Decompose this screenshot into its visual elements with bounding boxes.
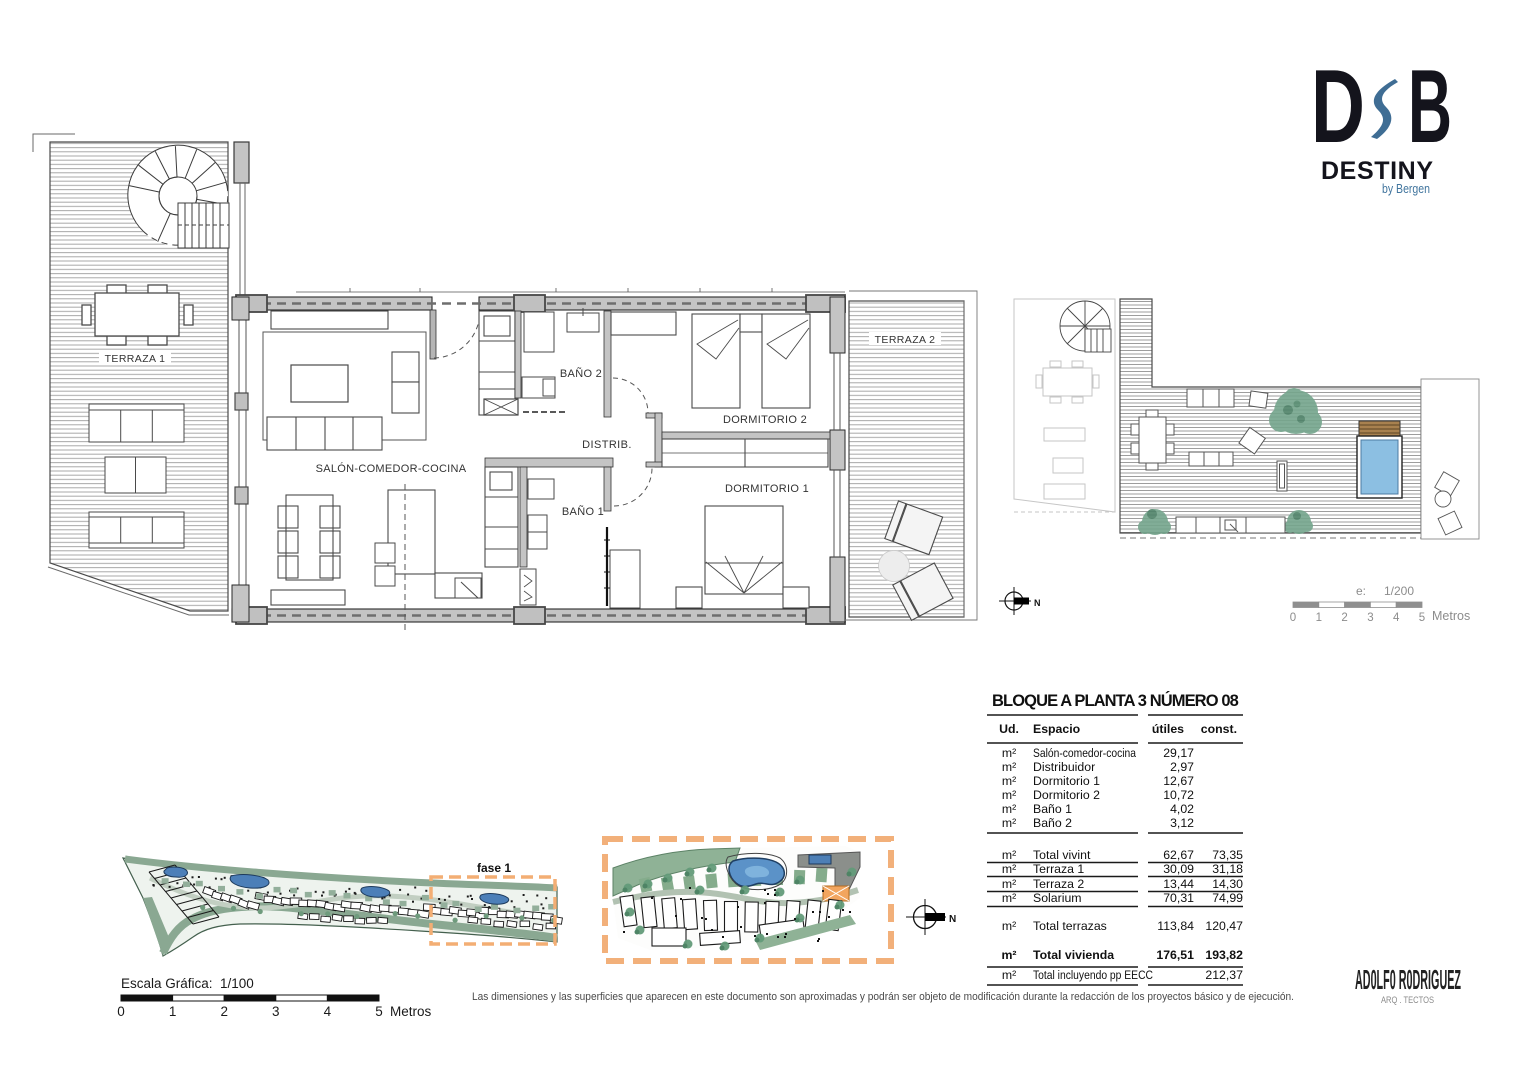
svg-text:m²: m² [1002, 877, 1016, 891]
svg-text:Total incluyendo pp EECC: Total incluyendo pp EECC [1033, 968, 1153, 982]
svg-text:1: 1 [1316, 612, 1322, 624]
svg-text:BAÑO 1: BAÑO 1 [562, 505, 604, 518]
svg-text:TERRAZA 1: TERRAZA 1 [105, 353, 166, 365]
svg-text:BAÑO 2: BAÑO 2 [560, 367, 602, 380]
svg-text:DORMITORIO 1: DORMITORIO 1 [725, 483, 809, 495]
svg-text:176,51: 176,51 [1156, 948, 1194, 962]
svg-text:ARQ . TECTOS: ARQ . TECTOS [1381, 995, 1434, 1005]
svg-text:120,47: 120,47 [1205, 919, 1243, 933]
svg-text:TERRAZA 2: TERRAZA 2 [875, 334, 936, 346]
svg-text:Total vivienda: Total vivienda [1033, 948, 1114, 962]
svg-text:N: N [1034, 598, 1041, 608]
svg-text:212,37: 212,37 [1205, 968, 1243, 982]
svg-text:Dormitorio 2: Dormitorio 2 [1033, 788, 1100, 802]
svg-text:2: 2 [1341, 612, 1347, 624]
svg-text:m²: m² [1002, 760, 1016, 774]
svg-text:14,30: 14,30 [1212, 877, 1243, 891]
svg-text:70,31: 70,31 [1163, 891, 1194, 905]
svg-text:1/200: 1/200 [1384, 584, 1414, 598]
svg-text:D: D [1311, 49, 1365, 165]
svg-text:útiles: útiles [1152, 722, 1184, 736]
svg-text:m²: m² [1002, 788, 1016, 802]
svg-text:AD0LF0 R0DRIGUEZ: AD0LF0 R0DRIGUEZ [1355, 964, 1461, 995]
svg-text:12,67: 12,67 [1163, 774, 1194, 788]
svg-text:const.: const. [1201, 722, 1237, 736]
svg-text:e:: e: [1356, 584, 1366, 598]
svg-text:by Bergen: by Bergen [1382, 181, 1430, 196]
svg-text:31,18: 31,18 [1212, 862, 1243, 876]
svg-text:B: B [1408, 49, 1452, 165]
svg-text:74,99: 74,99 [1212, 891, 1243, 905]
svg-text:Las dimensiones y las superfic: Las dimensiones y las superficies que ap… [472, 991, 1294, 1003]
svg-text:fase 1: fase 1 [477, 861, 511, 875]
svg-text:BLOQUE A PLANTA 3 NÚMERO 08: BLOQUE A PLANTA 3 NÚMERO 08 [992, 691, 1239, 710]
svg-text:Terraza 1: Terraza 1 [1033, 862, 1084, 876]
svg-text:113,84: 113,84 [1157, 919, 1194, 933]
svg-text:Salón-comedor-cocina: Salón-comedor-cocina [1033, 746, 1136, 760]
svg-text:5: 5 [375, 1004, 383, 1019]
svg-text:193,82: 193,82 [1205, 948, 1243, 962]
svg-text:2: 2 [220, 1004, 228, 1019]
svg-text:4,02: 4,02 [1170, 802, 1194, 816]
svg-text:1: 1 [169, 1004, 177, 1019]
svg-text:Solarium: Solarium [1033, 891, 1082, 905]
svg-text:Baño 2: Baño 2 [1033, 816, 1072, 830]
svg-text:4: 4 [1393, 612, 1400, 624]
svg-text:2,97: 2,97 [1170, 760, 1194, 774]
svg-text:m²: m² [1002, 802, 1016, 816]
svg-text:m²: m² [1002, 968, 1016, 982]
svg-text:DISTRIB.: DISTRIB. [582, 439, 632, 451]
svg-text:5: 5 [1419, 612, 1425, 624]
svg-text:Espacio: Espacio [1033, 722, 1081, 736]
svg-text:0: 0 [117, 1004, 125, 1019]
svg-text:Metros: Metros [390, 1004, 432, 1019]
svg-text:Total terrazas: Total terrazas [1033, 919, 1107, 933]
svg-text:m²: m² [1002, 891, 1016, 905]
svg-text:m²: m² [1002, 862, 1016, 876]
svg-text:3,12: 3,12 [1170, 816, 1194, 830]
svg-text:Escala Gráfica: 1/100: Escala Gráfica: 1/100 [121, 976, 254, 991]
svg-text:N: N [949, 914, 956, 925]
svg-text:Metros: Metros [1432, 609, 1470, 623]
svg-text:Distribuidor: Distribuidor [1033, 760, 1095, 774]
svg-text:m²: m² [1002, 746, 1016, 760]
svg-text:SALÓN-COMEDOR-COCINA: SALÓN-COMEDOR-COCINA [316, 462, 467, 475]
svg-text:62,67: 62,67 [1163, 848, 1194, 862]
svg-text:0: 0 [1290, 612, 1296, 624]
svg-text:DORMITORIO 2: DORMITORIO 2 [723, 414, 807, 426]
svg-text:10,72: 10,72 [1163, 788, 1194, 802]
svg-text:m²: m² [1002, 848, 1016, 862]
svg-text:m²: m² [1002, 774, 1016, 788]
svg-text:Ud.: Ud. [999, 722, 1019, 736]
svg-text:m²: m² [1002, 816, 1016, 830]
svg-text:13,44: 13,44 [1163, 877, 1194, 891]
svg-text:Terraza 2: Terraza 2 [1033, 877, 1084, 891]
svg-text:Dormitorio 1: Dormitorio 1 [1033, 774, 1100, 788]
svg-text:73,35: 73,35 [1212, 848, 1243, 862]
svg-text:3: 3 [1367, 612, 1373, 624]
svg-text:m²: m² [1001, 948, 1016, 962]
svg-text:Baño 1: Baño 1 [1033, 802, 1072, 816]
svg-text:3: 3 [272, 1004, 280, 1019]
svg-text:m²: m² [1002, 919, 1016, 933]
svg-text:4: 4 [324, 1004, 332, 1019]
svg-text:29,17: 29,17 [1163, 746, 1194, 760]
svg-text:Total vivint: Total vivint [1033, 848, 1091, 862]
svg-text:30,09: 30,09 [1163, 862, 1194, 876]
